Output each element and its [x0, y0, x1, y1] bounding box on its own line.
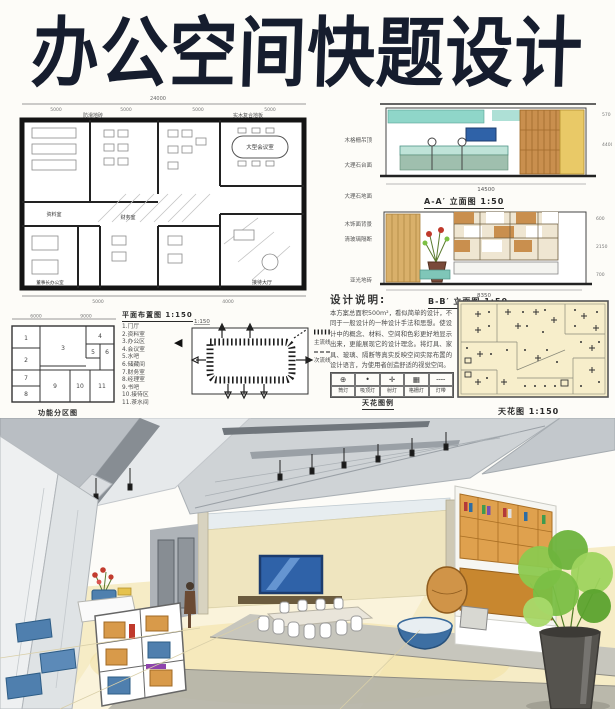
design-notes-body: 本方案总面积500m²，看似简单的设计，不同于一般设计的一种设计手法和思想。使设… [330, 309, 452, 371]
svg-text:次流线: 次流线 [314, 356, 331, 364]
svg-text:4000: 4000 [222, 299, 234, 305]
svg-text:5000: 5000 [120, 107, 132, 113]
svg-text:11: 11 [98, 383, 106, 390]
svg-text:5000: 5000 [92, 299, 104, 305]
svg-text:5000: 5000 [192, 107, 204, 113]
svg-text:8: 8 [24, 391, 28, 398]
svg-text:1:150: 1:150 [194, 319, 210, 325]
svg-text:700: 700 [596, 272, 605, 278]
svg-text:6000: 6000 [30, 314, 42, 320]
svg-text:10: 10 [76, 383, 84, 390]
light-strip-icon: ╌╌ [429, 373, 453, 386]
circulation-diagram: 1:150 主流线 次流线 [188, 314, 336, 406]
grille-lamp-icon: ▦ [404, 373, 428, 386]
svg-text:14500: 14500 [477, 187, 495, 193]
plan-room-archive: 资料室 [46, 211, 61, 218]
plan-dim-total: 24000 [150, 96, 166, 102]
elevation-b-notes: 木饰面背景清玻璃隔断 亚光地砖 [330, 222, 372, 285]
elevation-a-notes: 木格栅吊顶大理石台面 大理石地面 [330, 138, 372, 201]
side-chair [460, 606, 488, 630]
ceiling-plan-drawing [455, 298, 613, 406]
design-notes: 设计说明: 本方案总面积500m²，看似简单的设计，不同于一般设计的一种设计手法… [330, 292, 452, 371]
svg-text:6: 6 [105, 349, 109, 356]
room-legend-header: 平面布置图 1:150 [122, 310, 193, 322]
svg-text:4400: 4400 [602, 142, 612, 148]
board-title: 办公空间快题设计 [0, 0, 615, 98]
elevation-a-screen [466, 128, 496, 141]
svg-text:3: 3 [61, 345, 65, 352]
elevation-b-drawing: 8350 600 2150 700 [374, 206, 612, 298]
ceiling-legend-caption: 天花图例 [362, 398, 394, 410]
svg-text:9: 9 [53, 383, 57, 390]
floor-plan-drawing: 24000 5000 5000 5000 5000 防滑地砖 实木复合地板 [8, 94, 320, 306]
plan-room-lobby: 接待大厅 [252, 279, 272, 286]
left-shelf-unit [95, 603, 186, 706]
round-wood-panel [427, 567, 467, 613]
svg-text:大型会议室: 大型会议室 [246, 143, 274, 151]
design-notes-heading: 设计说明: [330, 292, 452, 307]
perspective-rendering [0, 418, 615, 709]
legend-pointer-icon: ◀ [174, 336, 182, 349]
zoning-diagram: 6000 9000 1 2 3 4 5 6 7 8 9 10 11 [6, 314, 120, 408]
svg-text:1: 1 [24, 335, 28, 342]
svg-text:主流线: 主流线 [314, 338, 331, 346]
elevation-b-shelving [454, 212, 558, 260]
elevation-a-counter [400, 146, 508, 155]
downlight-icon: ⊕ [331, 373, 355, 386]
svg-text:570: 570 [602, 112, 611, 118]
elevation-b-bench [420, 270, 450, 279]
svg-text:2: 2 [24, 357, 28, 364]
room-legend: 平面布置图 1:150 1.门厅2.资料室 3.办公区4.会议室 5.水吧6.储… [122, 310, 193, 408]
svg-text:5000: 5000 [264, 107, 276, 113]
svg-text:4: 4 [98, 333, 102, 340]
elevation-b-counter [454, 262, 558, 274]
svg-text:5000: 5000 [50, 107, 62, 113]
plan-room-finance: 财务室 [120, 214, 135, 221]
svg-text:5: 5 [91, 349, 95, 356]
svg-text:600: 600 [596, 216, 605, 222]
svg-text:7: 7 [24, 375, 28, 382]
ceiling-legend-table: ⊕ • ✛ ▦ ╌╌ 筒灯 吸顶灯 射灯 格栅灯 灯带 [330, 372, 454, 398]
ceiling-lamp-icon: • [355, 373, 379, 386]
elevation-a-drawing: 14500 570 4400 [374, 100, 612, 196]
spotlight-icon: ✛ [380, 373, 404, 386]
presentation-board: 办公空间快题设计 24000 5000 5000 5000 5000 防滑地砖 … [0, 0, 615, 709]
svg-text:9000: 9000 [80, 314, 92, 320]
svg-text:2150: 2150 [596, 244, 608, 250]
plan-room-chairman: 董事长办公室 [36, 279, 64, 286]
